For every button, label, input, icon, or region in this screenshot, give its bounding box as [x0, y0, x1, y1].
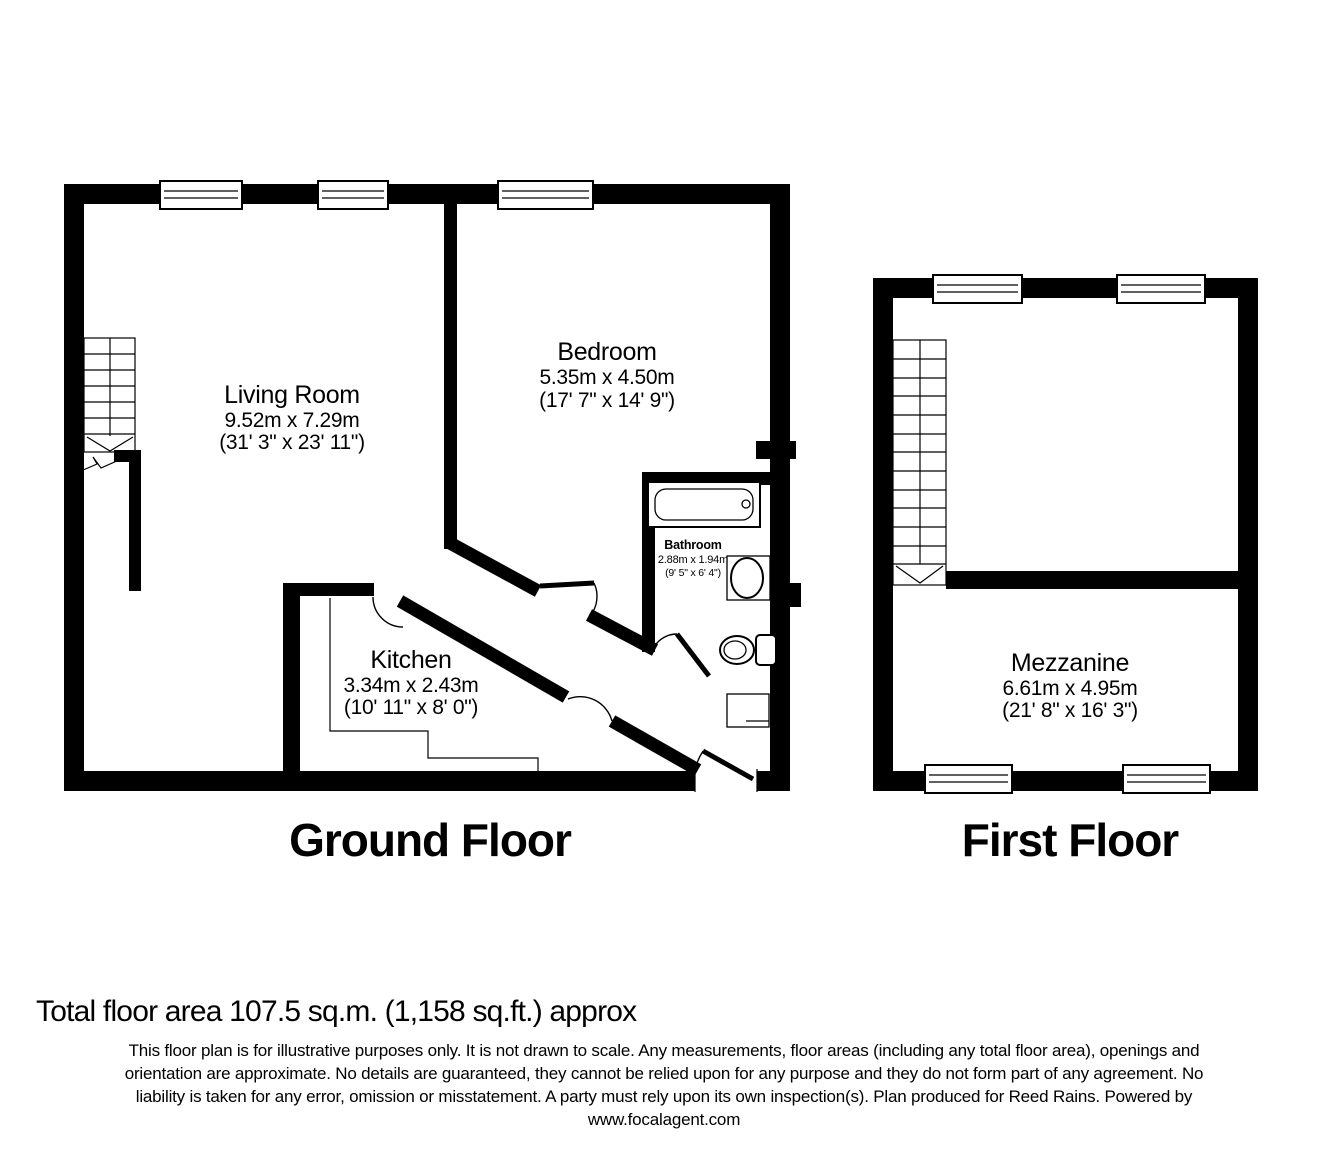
ground-floor-title: Ground Floor — [289, 814, 572, 866]
stairs-down-arrow — [896, 566, 943, 583]
window — [933, 275, 1022, 303]
living-room-label: Living Room — [224, 381, 360, 409]
footer: Total floor area 107.5 sq.m. (1,158 sq.f… — [36, 995, 1203, 1129]
floorplan-drawing: Living Room 9.52m x 7.29m (31' 3" x 23' … — [0, 0, 1328, 1151]
bathroom-dimensions-imperial: (9' 5" x 6' 4") — [665, 567, 721, 579]
ground-floor-plan: Living Room 9.52m x 7.29m (31' 3" x 23' … — [64, 181, 801, 866]
stairs-down-arrow — [87, 437, 133, 451]
first-floor-labels: Mezzanine 6.61m x 4.95m (21' 8" x 16' 3"… — [962, 649, 1180, 866]
total-floor-area: Total floor area 107.5 sq.m. (1,158 sq.f… — [36, 995, 637, 1028]
first-floor-interior-walls — [946, 571, 1238, 589]
mezzanine-dimensions-metric: 6.61m x 4.95m — [1003, 677, 1138, 700]
bedroom-dimensions-imperial: (17' 7" x 14' 9") — [539, 389, 675, 412]
floorplan-page: Living Room 9.52m x 7.29m (31' 3" x 23' … — [0, 0, 1328, 1151]
wall-notch — [756, 441, 796, 459]
window — [318, 181, 388, 209]
disclaimer-website: www.focalagent.com — [587, 1110, 740, 1129]
bathroom-fixtures — [648, 482, 776, 727]
ground-floor-windows — [160, 181, 593, 209]
bathroom-label: Bathroom — [664, 538, 722, 552]
stair-wall-stub — [114, 450, 141, 462]
bedroom-dimensions-metric: 5.35m x 4.50m — [540, 366, 675, 389]
disclaimer-line-3: liability is taken for any error, omissi… — [136, 1087, 1193, 1106]
bathroom-shelf — [727, 694, 769, 727]
kitchen-dimensions-imperial: (10' 11" x 8' 0") — [344, 696, 478, 719]
first-floor-staircase — [893, 340, 946, 585]
window — [1123, 765, 1210, 793]
disclaimer-line-1: This floor plan is for illustrative purp… — [129, 1041, 1200, 1060]
entrance-opening — [695, 768, 757, 793]
bedroom-label: Bedroom — [557, 338, 656, 366]
sink-icon — [727, 556, 770, 600]
first-floor-plan: Mezzanine 6.61m x 4.95m (21' 8" x 16' 3"… — [873, 275, 1258, 866]
ground-floor-staircase — [74, 338, 141, 591]
mezzanine-label: Mezzanine — [1011, 649, 1129, 677]
toilet-icon — [720, 635, 776, 665]
stair-wall-stub — [129, 462, 141, 591]
kitchen-dimensions-metric: 3.34m x 2.43m — [344, 674, 479, 697]
living-room-dimensions-metric: 9.52m x 7.29m — [225, 409, 360, 432]
kitchen-door-arc — [373, 597, 403, 627]
kitchen-left-wall — [283, 583, 300, 773]
hall-door-arc — [590, 583, 597, 616]
living-bedroom-divider-wall — [444, 204, 457, 549]
window — [1117, 275, 1205, 303]
wall-bump — [784, 583, 801, 607]
bathroom-dimensions-metric: 2.88m x 1.94m — [658, 554, 728, 566]
first-floor-title: First Floor — [962, 814, 1180, 866]
window — [160, 181, 242, 209]
mezzanine-wall — [946, 571, 1238, 589]
mezzanine-dimensions-imperial: (21' 8" x 16' 3") — [1002, 699, 1138, 722]
bathtub-icon — [648, 482, 760, 527]
window — [498, 181, 593, 209]
corridor-door-arc — [568, 697, 612, 721]
disclaimer-line-2: orientation are approximate. No details … — [125, 1064, 1204, 1083]
window — [925, 765, 1012, 793]
bathroom-door-leaf — [677, 634, 709, 676]
hall-door-leaf — [540, 583, 594, 586]
kitchen-label: Kitchen — [370, 646, 451, 674]
living-room-dimensions-imperial: (31' 3" x 23' 11") — [219, 431, 365, 454]
